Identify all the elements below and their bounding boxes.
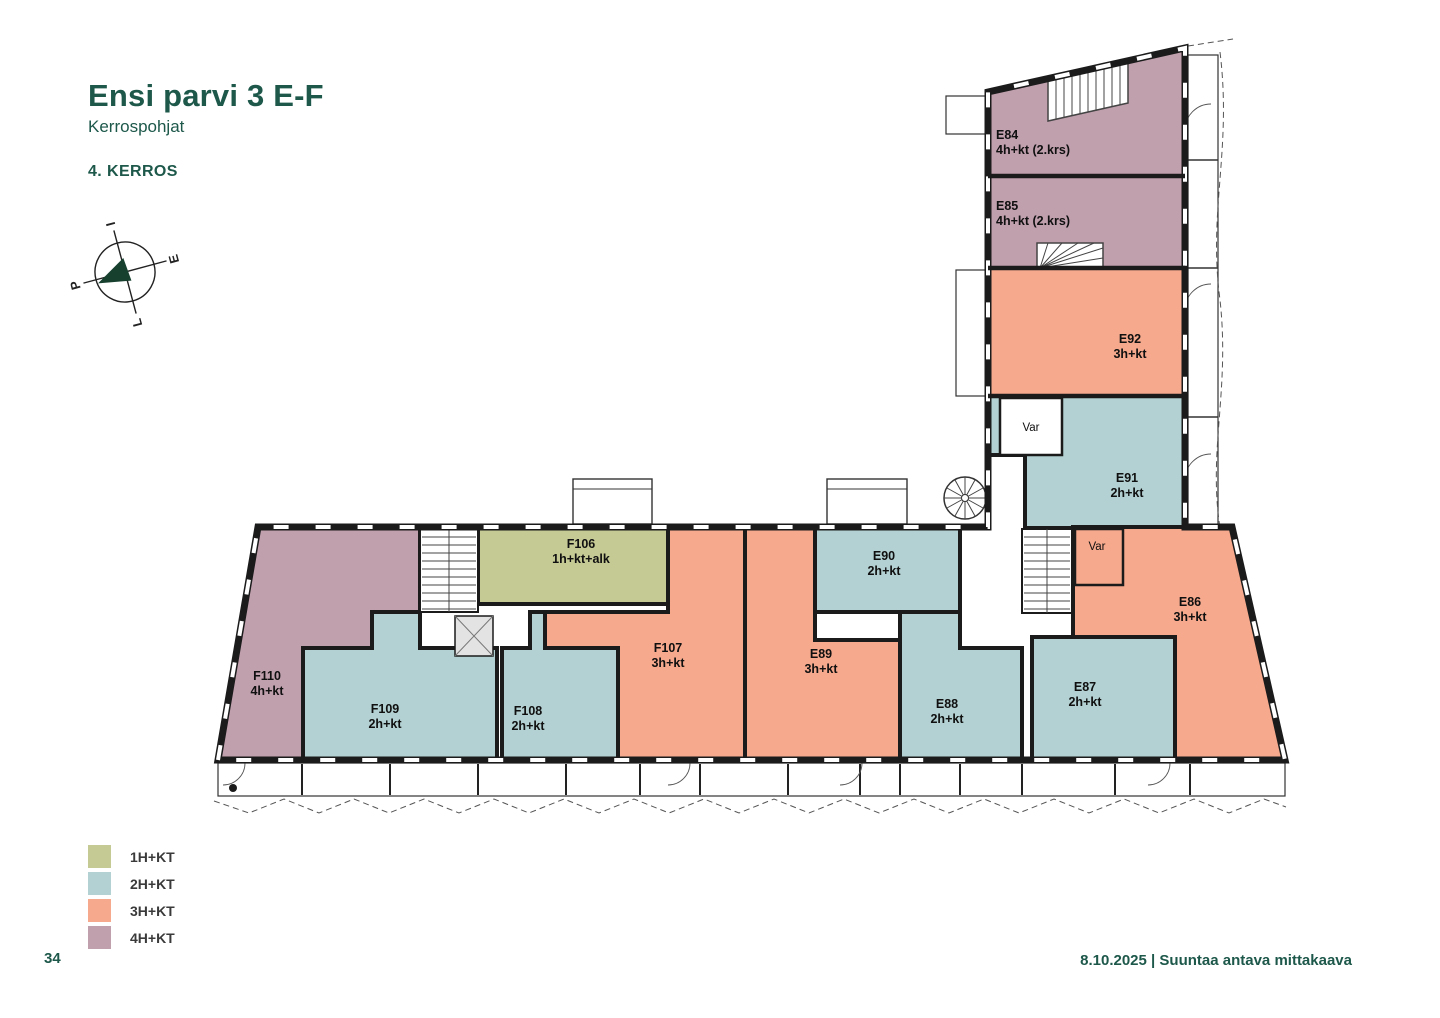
unit-F109-type: 2h+kt — [368, 717, 402, 731]
spiral-stair-center — [962, 495, 969, 502]
unit-E92-label: E92 — [1119, 332, 1141, 346]
unit-E84-type: 4h+kt (2.krs) — [996, 143, 1070, 157]
entry-porch — [946, 96, 988, 134]
legend-label-3hkt: 3H+KT — [130, 903, 175, 919]
floor-plan: E84 4h+kt (2.krs) E85 4h+kt (2.krs) E92 … — [0, 0, 1440, 1018]
unit-F108-label: F108 — [514, 704, 543, 718]
site-line-northeast — [1188, 39, 1233, 46]
legend-swatch-3hkt — [88, 899, 111, 922]
unit-F106-type: 1h+kt+alk — [552, 552, 610, 566]
unit-E84-label: E84 — [996, 128, 1018, 142]
balcony-north-1 — [573, 479, 652, 524]
unit-E86-label: E86 — [1179, 595, 1201, 609]
apartment-regions — [218, 48, 1285, 760]
unit-F107-label: F107 — [654, 641, 683, 655]
site-line-south — [214, 799, 1286, 813]
storage-label-E86: Var — [1088, 541, 1105, 553]
unit-E91-label: E91 — [1116, 471, 1138, 485]
legend-row-4hkt: 4H+KT — [88, 924, 175, 951]
unit-E85-type: 4h+kt (2.krs) — [996, 214, 1070, 228]
balcony-north-2 — [827, 479, 907, 524]
balcony-south-strip — [218, 763, 1285, 796]
storage-label-E91: Var — [1022, 422, 1039, 434]
page-number: 34 — [44, 950, 61, 967]
unit-F110-type: 4h+kt — [250, 684, 284, 698]
unit-F107-type: 3h+kt — [651, 656, 685, 670]
legend-swatch-3hkt-rect — [88, 899, 111, 922]
legend-swatch-2hkt — [88, 872, 111, 895]
legend-swatch-4hkt-rect — [88, 926, 111, 949]
unit-E91-type: 2h+kt — [1110, 486, 1144, 500]
legend-row-1hkt: 1H+KT — [88, 843, 175, 870]
unit-E90-label: E90 — [873, 549, 895, 563]
unit-F110-label: F110 — [253, 669, 281, 683]
unit-E92-region — [988, 268, 1185, 396]
document-page: Ensi parvi 3 E-F Kerrospohjat 4. KERROS … — [0, 0, 1440, 1018]
legend-label-4hkt: 4H+KT — [130, 930, 175, 946]
footer-note: 8.10.2025 | Suuntaa antava mittakaava — [1080, 952, 1352, 969]
unit-E87-label: E87 — [1074, 680, 1096, 694]
legend-swatch-1hkt-rect — [88, 845, 111, 868]
unit-F106-label: F106 — [567, 537, 596, 551]
unit-F109-label: F109 — [371, 702, 400, 716]
unit-E90-type: 2h+kt — [867, 564, 901, 578]
unit-E88-label: E88 — [936, 697, 958, 711]
legend: 1H+KT 2H+KT 3H+KT 4H+KT — [88, 843, 175, 951]
legend-label-1hkt: 1H+KT — [130, 849, 175, 865]
unit-E87-region — [1032, 637, 1175, 760]
unit-E92-type: 3h+kt — [1113, 347, 1147, 361]
legend-swatch-2hkt-rect — [88, 872, 111, 895]
legend-row-3hkt: 3H+KT — [88, 897, 175, 924]
unit-E88-type: 2h+kt — [930, 712, 964, 726]
column-dot — [229, 784, 237, 792]
unit-E86-type: 3h+kt — [1173, 610, 1207, 624]
legend-label-2hkt: 2H+KT — [130, 876, 175, 892]
unit-E87-type: 2h+kt — [1068, 695, 1102, 709]
legend-swatch-4hkt — [88, 926, 111, 949]
unit-F108-type: 2h+kt — [511, 719, 545, 733]
legend-swatch-1hkt — [88, 845, 111, 868]
unit-E85-label: E85 — [996, 199, 1018, 213]
unit-E89-type: 3h+kt — [804, 662, 838, 676]
legend-row-2hkt: 2H+KT — [88, 870, 175, 897]
unit-E89-label: E89 — [810, 647, 832, 661]
balcony-west — [956, 270, 988, 396]
